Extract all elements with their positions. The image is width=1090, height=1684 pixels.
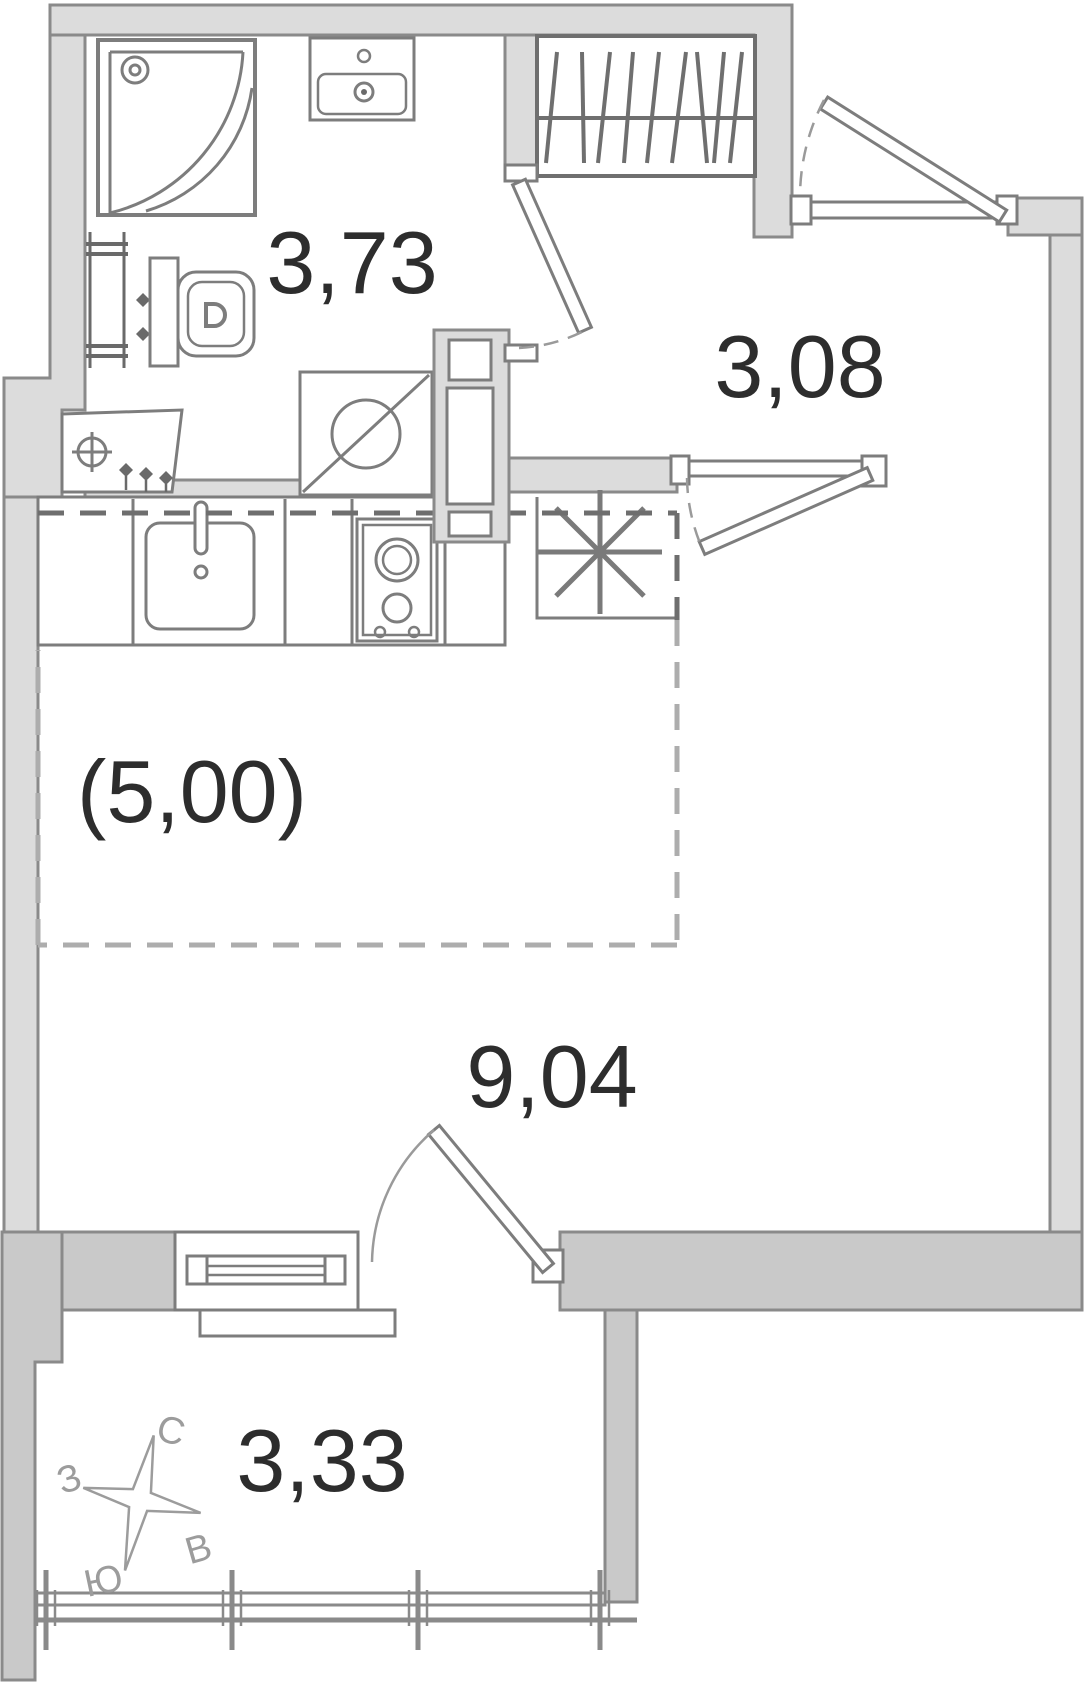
wall-west xyxy=(4,497,38,1232)
wall-room-south-right xyxy=(560,1232,1082,1310)
balcony-window xyxy=(175,1232,395,1336)
hall-door xyxy=(671,456,886,554)
toilet xyxy=(136,258,254,366)
living-room-area-label: 9,04 xyxy=(466,1027,637,1126)
bathroom-area-label: 3,73 xyxy=(266,213,437,312)
wall-entrance-block xyxy=(1008,198,1082,235)
compass-west-label: З xyxy=(52,1456,87,1503)
door-leaf xyxy=(513,179,592,333)
floor-plan-page: С З В Ю 3,73 3,08 (5,00) 9,04 3,33 xyxy=(0,0,1090,1684)
water-meter-unit xyxy=(62,410,182,492)
door-threshold xyxy=(689,461,862,476)
washing-machine xyxy=(300,372,432,495)
compass-star-icon xyxy=(83,1435,200,1570)
door-swing-arc xyxy=(800,100,824,196)
door-leaf xyxy=(429,1126,554,1273)
towel-radiator xyxy=(86,232,128,368)
wall-hall-south xyxy=(505,458,677,492)
balcony-glazing xyxy=(35,1570,637,1650)
door-swing-arc xyxy=(372,1130,434,1262)
faucet-icon xyxy=(195,502,207,554)
snowflake-icon xyxy=(538,490,662,614)
wall-balcony-left xyxy=(2,1232,62,1680)
shower-head-icon xyxy=(122,57,148,83)
ventilation-shaft xyxy=(434,330,509,542)
compass-south-label: Ю xyxy=(80,1557,126,1606)
wall-bathroom-east xyxy=(505,35,537,165)
wardrobe xyxy=(537,36,755,176)
balcony-area-label: 3,33 xyxy=(236,1411,407,1510)
door-swing-arc xyxy=(687,478,702,548)
kitchen-zone-area-label: (5,00) xyxy=(77,742,307,841)
door-leaf xyxy=(699,468,873,555)
wall-balcony-right xyxy=(605,1310,637,1602)
kitchen xyxy=(38,490,677,945)
entrance-door xyxy=(791,97,1017,224)
floor-plan: С З В Ю 3,73 3,08 (5,00) 9,04 3,33 xyxy=(0,0,1090,1684)
bathroom-sink xyxy=(310,38,414,120)
door-jamb xyxy=(791,196,811,224)
bathroom-door xyxy=(505,165,591,361)
compass-north-label: С xyxy=(153,1408,190,1455)
window-sill xyxy=(200,1310,395,1336)
shower-tray xyxy=(98,40,255,215)
compass-east-label: В xyxy=(181,1526,217,1573)
refrigerator-symbol xyxy=(537,490,677,618)
cooktop xyxy=(357,519,437,641)
door-jamb xyxy=(505,165,537,181)
compass-rose: С З В Ю xyxy=(52,1408,217,1606)
hallway-area-label: 3,08 xyxy=(714,317,885,416)
wall-right xyxy=(1050,235,1082,1232)
balcony-door xyxy=(372,1126,563,1283)
